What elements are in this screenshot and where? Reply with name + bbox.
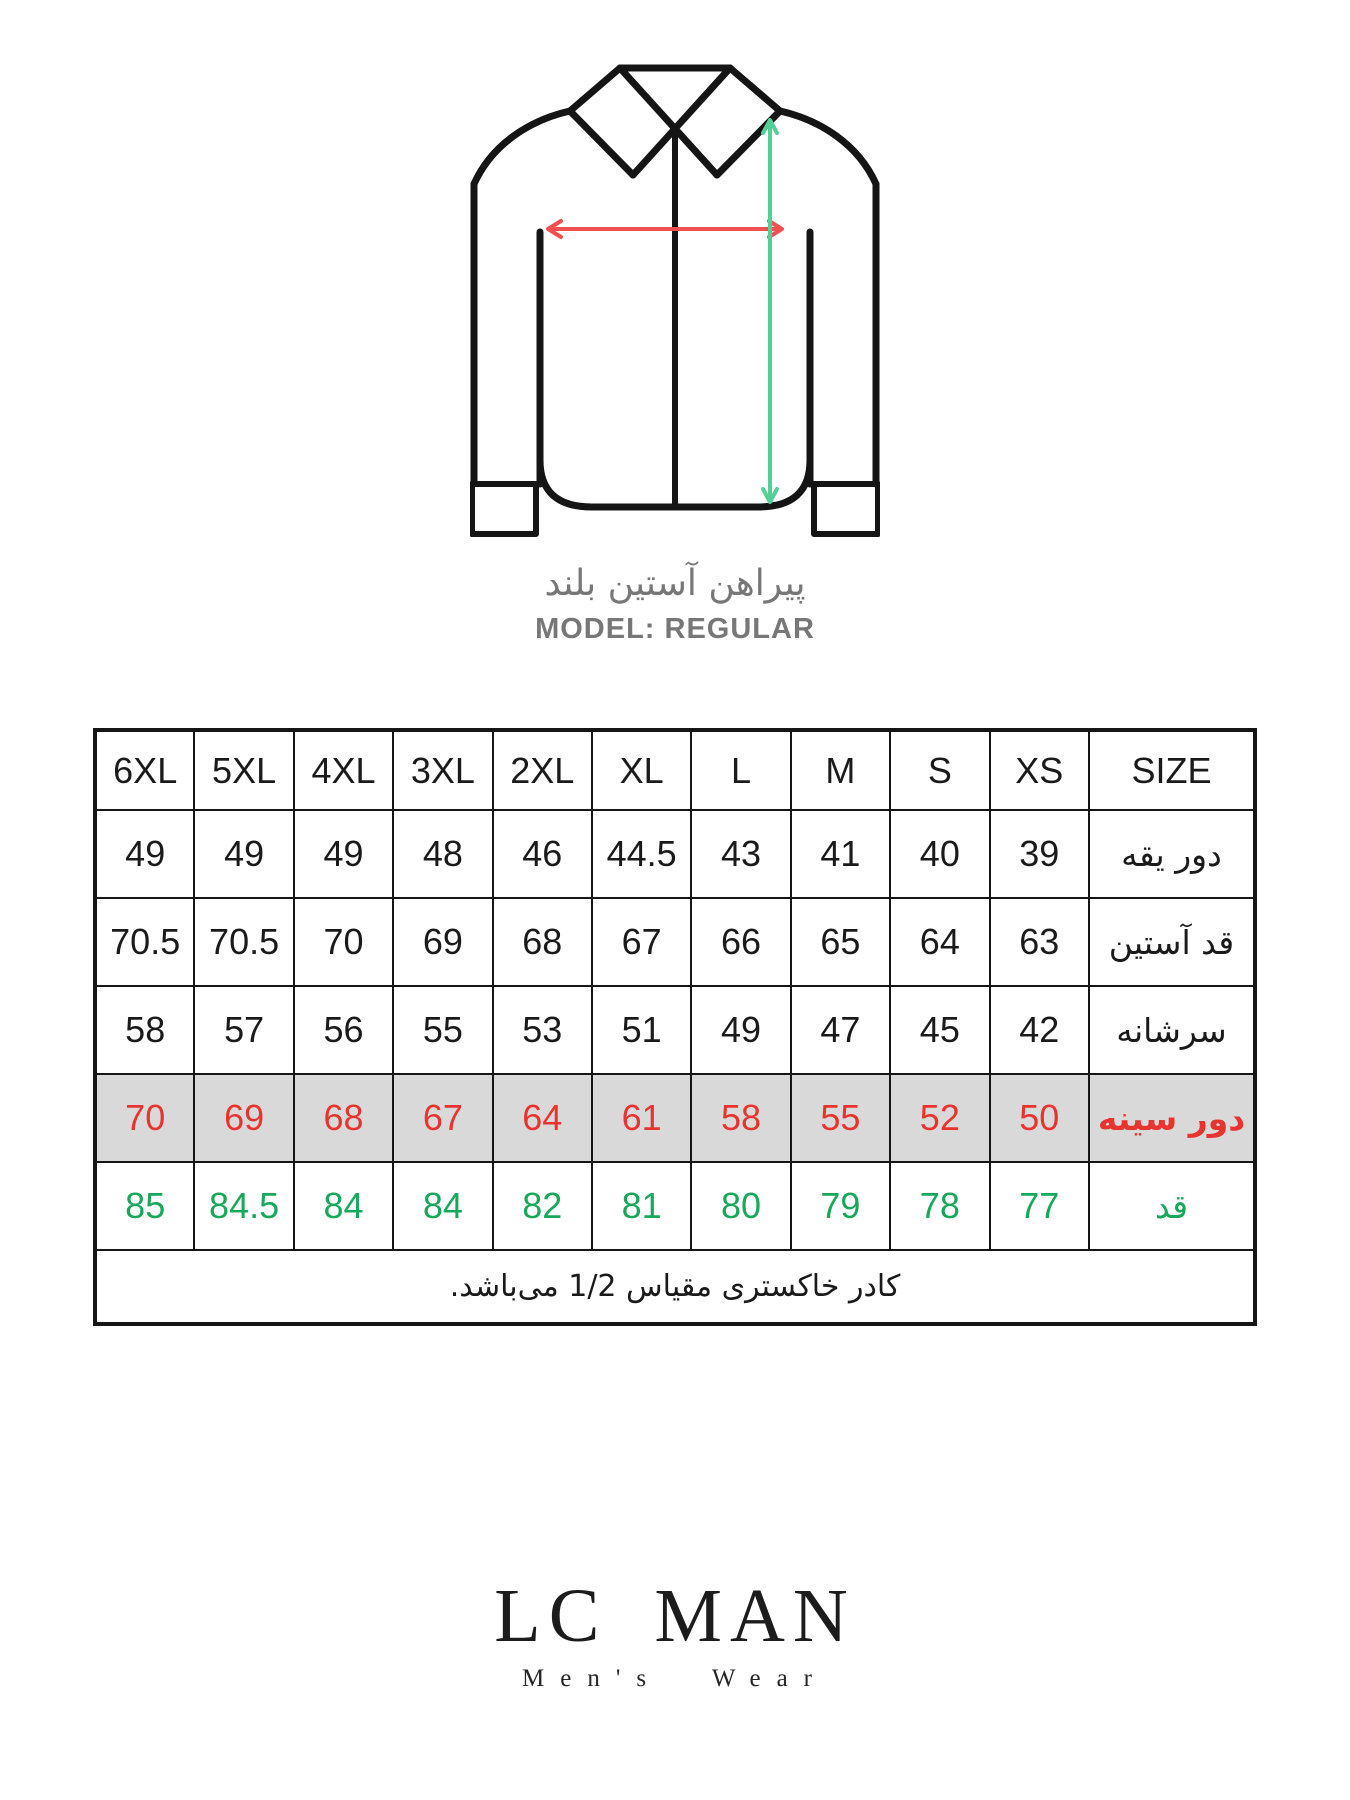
- table-row: 70696867646158555250دور سینه: [95, 1074, 1255, 1162]
- chest-width-arrow: [548, 221, 782, 237]
- size-cell: 43: [691, 810, 790, 898]
- size-cell: 66: [691, 898, 790, 986]
- size-table-header-cell: 5XL: [194, 730, 293, 810]
- size-cell: 49: [294, 810, 393, 898]
- scale-note: کادر خاکستری مقیاس 1/2 می‌باشد.: [95, 1250, 1255, 1324]
- table-row: 494949484644.543414039دور یقه: [95, 810, 1255, 898]
- size-cell: 41: [791, 810, 890, 898]
- size-cell: 58: [95, 986, 194, 1074]
- size-table-header-row: 6XL5XL4XL3XL2XLXLLMSXSSIZE: [95, 730, 1255, 810]
- brand-tagline: Men's Wear: [0, 1664, 1350, 1694]
- size-cell: 64: [890, 898, 989, 986]
- size-table-header-cell: 4XL: [294, 730, 393, 810]
- size-cell: 49: [194, 810, 293, 898]
- size-cell: 77: [990, 1162, 1089, 1250]
- table-row: 70.570.57069686766656463قد آستین: [95, 898, 1255, 986]
- row-label: قد آستین: [1089, 898, 1255, 986]
- table-row: 58575655535149474542سرشانه: [95, 986, 1255, 1074]
- size-cell: 69: [393, 898, 492, 986]
- row-label: سرشانه: [1089, 986, 1255, 1074]
- row-label: دور یقه: [1089, 810, 1255, 898]
- left-shoulder: [474, 111, 570, 184]
- size-table-header-cell: XL: [592, 730, 691, 810]
- size-cell: 67: [393, 1074, 492, 1162]
- row-label: قد: [1089, 1162, 1255, 1250]
- size-cell: 40: [890, 810, 989, 898]
- brand-name: LC MAN: [0, 1576, 1350, 1656]
- size-cell: 84: [294, 1162, 393, 1250]
- right-shoulder: [780, 111, 876, 184]
- size-cell: 69: [194, 1074, 293, 1162]
- size-cell: 84: [393, 1162, 492, 1250]
- size-table-header-cell: SIZE: [1089, 730, 1255, 810]
- size-cell: 53: [493, 986, 592, 1074]
- brand-logo: LC MAN Men's Wear: [0, 1576, 1350, 1694]
- size-table-header-cell: L: [691, 730, 790, 810]
- table-row: 8584.58484828180797877قد: [95, 1162, 1255, 1250]
- size-cell: 65: [791, 898, 890, 986]
- size-table-header-cell: S: [890, 730, 989, 810]
- size-cell: 58: [691, 1074, 790, 1162]
- size-cell: 70: [294, 898, 393, 986]
- left-cuff: [472, 484, 536, 534]
- size-cell: 44.5: [592, 810, 691, 898]
- size-cell: 64: [493, 1074, 592, 1162]
- size-table-header-cell: XS: [990, 730, 1089, 810]
- shirt-diagram: پیراهن آستین بلند MODEL: REGULAR: [0, 0, 1350, 646]
- size-cell: 45: [890, 986, 989, 1074]
- size-cell: 48: [393, 810, 492, 898]
- size-cell: 47: [791, 986, 890, 1074]
- size-cell: 50: [990, 1074, 1089, 1162]
- size-cell: 70: [95, 1074, 194, 1162]
- size-table-header-cell: 6XL: [95, 730, 194, 810]
- size-cell: 52: [890, 1074, 989, 1162]
- size-cell: 78: [890, 1162, 989, 1250]
- row-label: دور سینه: [1089, 1074, 1255, 1162]
- size-cell: 55: [791, 1074, 890, 1162]
- shirt-outline-illustration: [470, 64, 880, 542]
- size-cell: 81: [592, 1162, 691, 1250]
- size-cell: 85: [95, 1162, 194, 1250]
- size-cell: 70.5: [95, 898, 194, 986]
- size-cell: 51: [592, 986, 691, 1074]
- right-cuff: [814, 484, 878, 534]
- size-cell: 68: [493, 898, 592, 986]
- size-cell: 42: [990, 986, 1089, 1074]
- size-cell: 39: [990, 810, 1089, 898]
- size-table-body: 6XL5XL4XL3XL2XLXLLMSXSSIZE494949484644.5…: [95, 730, 1255, 1324]
- size-cell: 49: [95, 810, 194, 898]
- size-cell: 79: [791, 1162, 890, 1250]
- size-cell: 46: [493, 810, 592, 898]
- size-table-header-cell: 3XL: [393, 730, 492, 810]
- size-cell: 82: [493, 1162, 592, 1250]
- size-table: 6XL5XL4XL3XL2XLXLLMSXSSIZE494949484644.5…: [93, 728, 1257, 1326]
- size-guide-page: پیراهن آستین بلند MODEL: REGULAR 6XL5XL4…: [0, 0, 1350, 1800]
- size-cell: 84.5: [194, 1162, 293, 1250]
- shirt-outline: [472, 68, 878, 534]
- size-cell: 68: [294, 1074, 393, 1162]
- model-label: MODEL: REGULAR: [0, 612, 1350, 646]
- note-row: کادر خاکستری مقیاس 1/2 می‌باشد.: [95, 1250, 1255, 1324]
- length-arrow: [763, 120, 777, 502]
- product-type-caption: پیراهن آستین بلند: [0, 562, 1350, 606]
- size-cell: 57: [194, 986, 293, 1074]
- size-cell: 56: [294, 986, 393, 1074]
- size-cell: 70.5: [194, 898, 293, 986]
- size-cell: 80: [691, 1162, 790, 1250]
- size-cell: 67: [592, 898, 691, 986]
- size-table-header-cell: 2XL: [493, 730, 592, 810]
- size-cell: 49: [691, 986, 790, 1074]
- size-cell: 55: [393, 986, 492, 1074]
- size-cell: 63: [990, 898, 1089, 986]
- size-table-header-cell: M: [791, 730, 890, 810]
- size-cell: 61: [592, 1074, 691, 1162]
